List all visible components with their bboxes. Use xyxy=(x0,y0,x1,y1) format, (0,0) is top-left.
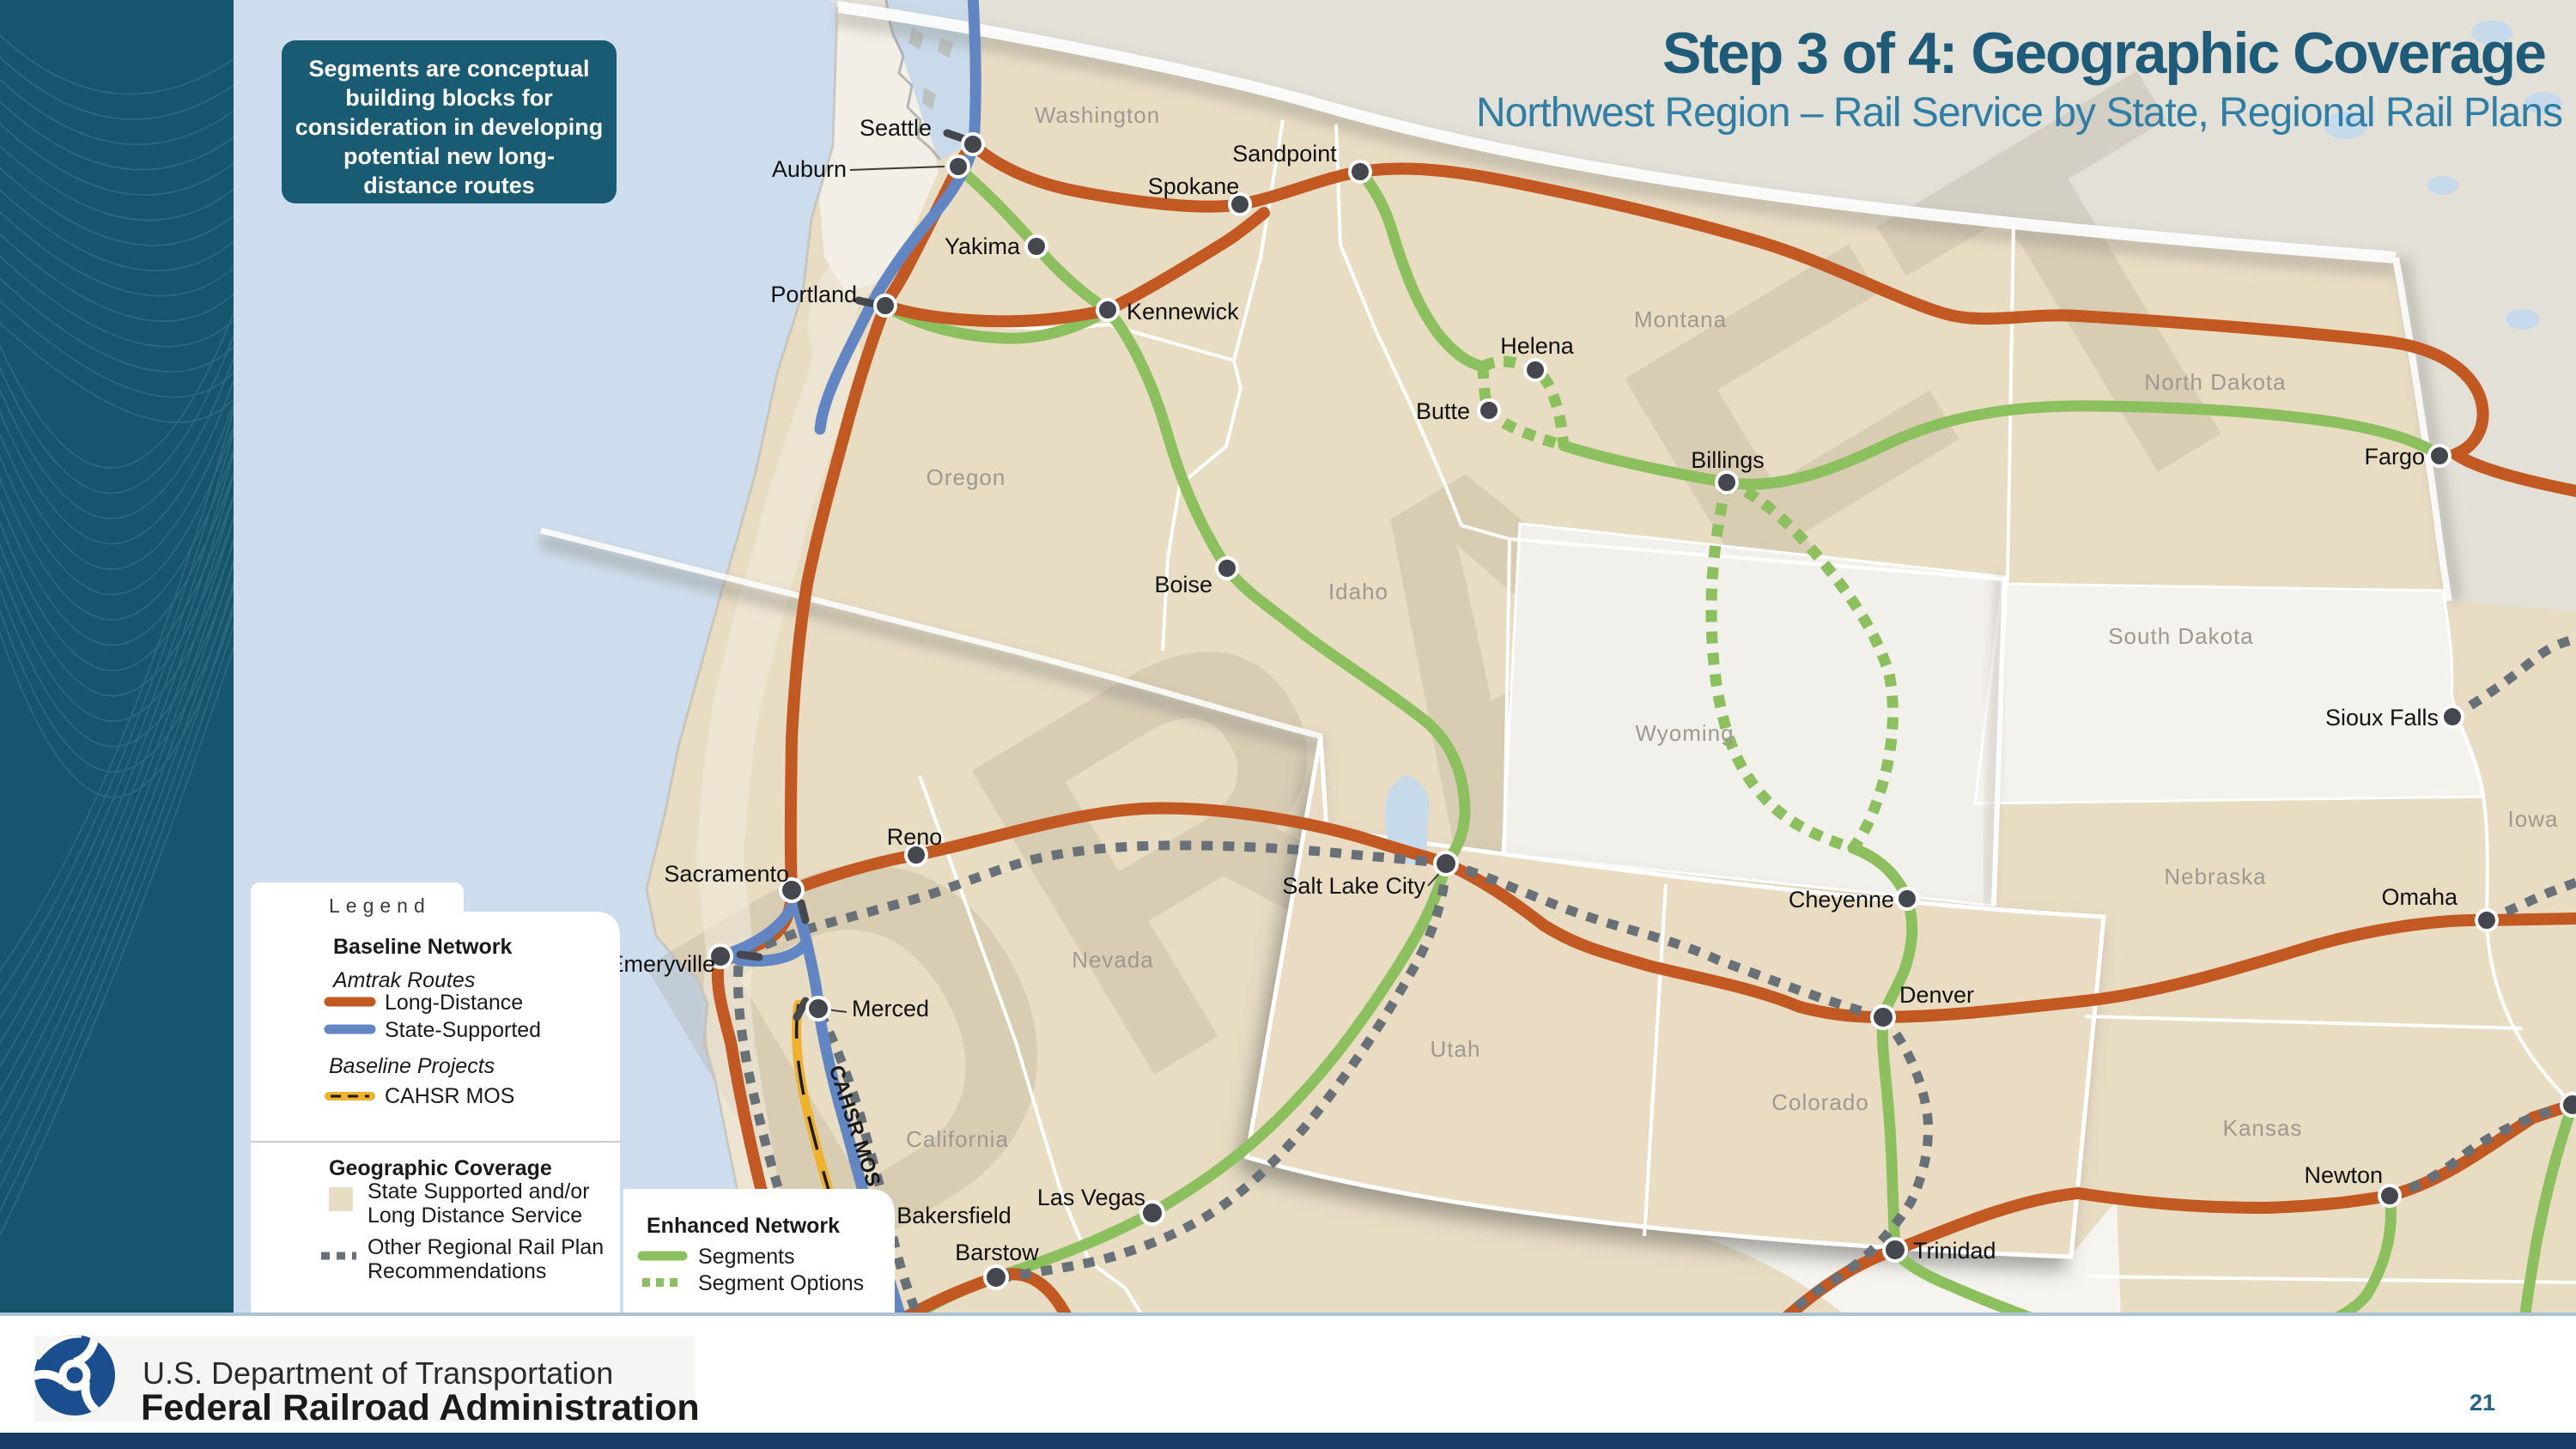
svg-text:Fargo: Fargo xyxy=(2364,444,2425,470)
svg-text:Butte: Butte xyxy=(1416,398,1470,424)
svg-text:Merced: Merced xyxy=(852,996,929,1022)
svg-text:Kennewick: Kennewick xyxy=(1127,299,1239,324)
svg-text:Seattle: Seattle xyxy=(860,115,932,141)
svg-text:Washington: Washington xyxy=(1035,102,1160,128)
svg-text:Segments are conceptual: Segments are conceptual xyxy=(308,56,589,82)
svg-text:Segment Options: Segment Options xyxy=(698,1271,864,1295)
svg-text:Cheyenne: Cheyenne xyxy=(1789,887,1894,912)
svg-text:Northwest Region – Rail Servic: Northwest Region – Rail Service by State… xyxy=(1476,90,2562,136)
svg-text:Montana: Montana xyxy=(1634,306,1727,332)
svg-text:Boise: Boise xyxy=(1154,572,1212,597)
svg-text:Segments: Segments xyxy=(698,1245,795,1269)
svg-text:Newton: Newton xyxy=(2304,1162,2383,1188)
svg-text:Omaha: Omaha xyxy=(2381,884,2458,910)
svg-text:Portland: Portland xyxy=(770,282,857,307)
svg-text:North Dakota: North Dakota xyxy=(2144,369,2286,395)
svg-text:building blocks for: building blocks for xyxy=(345,85,553,111)
svg-text:South Dakota: South Dakota xyxy=(2108,623,2254,649)
svg-text:Enhanced Network: Enhanced Network xyxy=(647,1214,840,1238)
svg-text:Trinidad: Trinidad xyxy=(1913,1238,1996,1264)
svg-text:Idaho: Idaho xyxy=(1328,579,1388,604)
svg-text:Emeryville: Emeryville xyxy=(608,951,715,977)
svg-text:Reno: Reno xyxy=(887,824,943,850)
svg-text:Colorado: Colorado xyxy=(1771,1089,1869,1115)
svg-text:Billings: Billings xyxy=(1691,447,1765,473)
svg-text:Sacramento: Sacramento xyxy=(664,861,789,887)
svg-text:Auburn: Auburn xyxy=(772,156,847,182)
svg-text:Wyoming: Wyoming xyxy=(1635,720,1734,746)
svg-text:Iowa: Iowa xyxy=(2508,806,2559,832)
svg-text:Utah: Utah xyxy=(1431,1036,1481,1062)
svg-text:U.S. Department of Transportat: U.S. Department of Transportation xyxy=(143,1355,613,1391)
svg-text:Salt Lake City: Salt Lake City xyxy=(1282,873,1425,899)
svg-text:Denver: Denver xyxy=(1899,982,1974,1008)
svg-text:CAHSR MOS: CAHSR MOS xyxy=(385,1084,514,1108)
svg-text:California: California xyxy=(906,1126,1009,1152)
svg-text:Recommendations: Recommendations xyxy=(368,1259,546,1283)
svg-text:Barstow: Barstow xyxy=(955,1240,1039,1265)
svg-text:State Supported and/or: State Supported and/or xyxy=(368,1179,590,1203)
svg-text:Helena: Helena xyxy=(1500,333,1575,359)
svg-text:distance routes: distance routes xyxy=(363,173,535,198)
svg-text:Long-Distance: Long-Distance xyxy=(385,991,523,1015)
svg-text:Yakima: Yakima xyxy=(945,233,1021,259)
svg-text:Bakersfield: Bakersfield xyxy=(896,1203,1012,1228)
svg-text:Baseline Network: Baseline Network xyxy=(333,935,513,959)
svg-text:Sioux Falls: Sioux Falls xyxy=(2325,705,2439,731)
svg-text:Nevada: Nevada xyxy=(1072,947,1154,973)
svg-text:State-Supported: State-Supported xyxy=(385,1018,541,1042)
svg-text:Sandpoint: Sandpoint xyxy=(1232,141,1337,167)
svg-text:Las Vegas: Las Vegas xyxy=(1037,1185,1145,1210)
svg-text:Oregon: Oregon xyxy=(927,464,1006,490)
svg-text:Amtrak Routes: Amtrak Routes xyxy=(331,968,475,992)
svg-text:Long Distance Service: Long Distance Service xyxy=(368,1203,582,1228)
svg-text:Federal Railroad Administratio: Federal Railroad Administration xyxy=(141,1387,700,1428)
svg-text:Spokane: Spokane xyxy=(1148,173,1240,199)
svg-text:Step 3 of 4: Geographic Covera: Step 3 of 4: Geographic Coverage xyxy=(1662,21,2545,86)
svg-text:21: 21 xyxy=(2470,1390,2495,1416)
svg-text:Geographic Coverage: Geographic Coverage xyxy=(329,1156,552,1180)
svg-text:Baseline Projects: Baseline Projects xyxy=(329,1054,495,1078)
svg-text:Other Regional Rail Plan: Other Regional Rail Plan xyxy=(368,1235,604,1259)
svg-text:potential new long-: potential new long- xyxy=(343,143,555,169)
svg-text:Kansas: Kansas xyxy=(2223,1115,2303,1141)
svg-text:consideration in developing: consideration in developing xyxy=(295,114,604,140)
svg-text:Nebraska: Nebraska xyxy=(2164,864,2266,889)
svg-text:Legend: Legend xyxy=(329,894,431,917)
